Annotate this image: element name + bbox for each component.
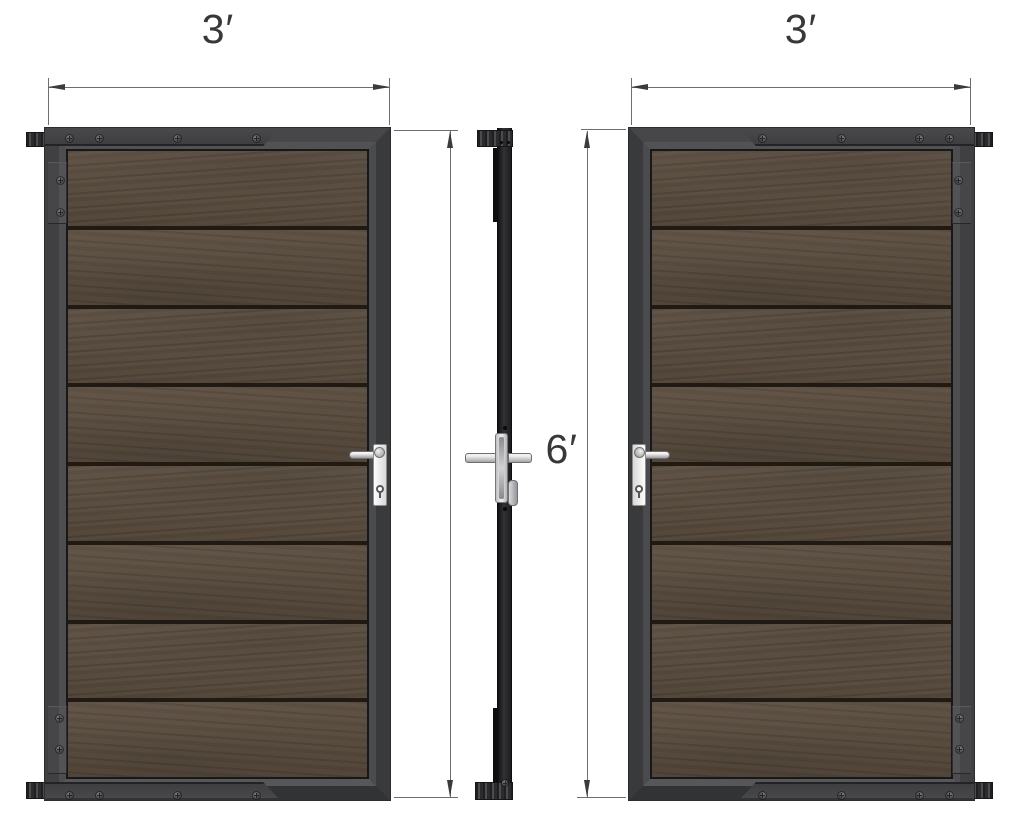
arrowhead-left [48,84,65,90]
extension-line [577,797,626,798]
bottom-rail-cover-plate [45,782,278,798]
screw [66,135,73,142]
composite-plank [68,462,367,541]
composite-plank [68,305,367,384]
dimension-line [48,87,390,88]
screw [56,746,63,753]
screw [253,135,260,142]
arrowhead-left [631,84,648,90]
composite-plank [652,226,951,305]
screw [57,209,64,216]
hinge-bracket-top [973,132,993,147]
screw [57,177,64,184]
screw [253,792,260,799]
plank-infill [652,151,951,777]
backplate-slot [499,437,504,499]
width-label-left: 3′ [140,6,296,53]
extension-line [970,78,971,125]
rivet [507,141,510,144]
composite-plank [68,383,367,462]
dimension-line [631,87,971,88]
top-rail-cover-plate [741,130,974,146]
screw [946,792,953,799]
gate-technical-diagram: 3′ 3′ 6′ [0,0,1024,825]
composite-plank [652,383,951,462]
gate-assembly [45,128,390,800]
handle-lever-near [465,453,497,463]
arrowhead-down [447,780,453,797]
dimension-line [587,131,588,797]
gate-front-left-view [45,128,390,800]
screw [96,792,103,799]
composite-plank [652,698,951,777]
screw [502,780,508,786]
arrowhead-up [584,131,590,148]
composite-plank [652,620,951,699]
screw [66,792,73,799]
composite-plank [68,541,367,620]
lock-cylinder-side [508,480,518,506]
screw [759,135,766,142]
composite-plank [68,698,367,777]
screw [96,135,103,142]
hinge-bracket-bottom [26,782,46,799]
edge-trim-upper [493,148,498,222]
arrowhead-right [954,84,971,90]
keyhole-icon [635,485,643,493]
top-rail-cover-plate [45,130,278,146]
screw [916,135,923,142]
rivet [500,141,503,144]
handle-lever-far [508,453,532,463]
screw [956,715,963,722]
composite-plank [68,620,367,699]
hinge-bracket-bottom [973,782,993,799]
screw-dot [503,426,507,430]
screw [956,746,963,753]
extension-line [48,78,49,125]
gate-front-right-view [629,128,974,800]
gate-side-profile-view [460,128,535,800]
screw [838,792,845,799]
composite-plank [652,305,951,384]
extension-line [581,129,626,130]
screw [955,209,962,216]
handle-boss [634,447,645,458]
composite-plank [652,151,951,226]
plank-infill [68,151,367,777]
handle-boss [374,447,385,458]
extension-line [631,78,632,125]
bottom-rail-cover-plate [741,782,974,798]
extension-line [389,78,390,125]
gate-assembly [629,128,974,800]
screw [759,792,766,799]
arrowhead-up [447,131,453,148]
screw [56,715,63,722]
dimension-line [450,131,451,797]
screw [946,135,953,142]
extension-line [394,130,458,131]
composite-plank [68,151,367,226]
arrowhead-right [373,84,390,90]
screw [838,135,845,142]
screw-dot [503,507,507,511]
extension-line [394,797,458,798]
screw [174,135,181,142]
arrowhead-down [584,780,590,797]
composite-plank [652,541,951,620]
screw [916,792,923,799]
width-label-right: 3′ [723,6,879,53]
screw [955,177,962,184]
hinge-bracket-top [26,132,46,147]
edge-trim-lower [493,708,498,783]
screw [174,792,181,799]
composite-plank [652,462,951,541]
composite-plank [68,226,367,305]
keyhole-icon [376,485,384,493]
hinge-bracket-top [477,130,513,147]
